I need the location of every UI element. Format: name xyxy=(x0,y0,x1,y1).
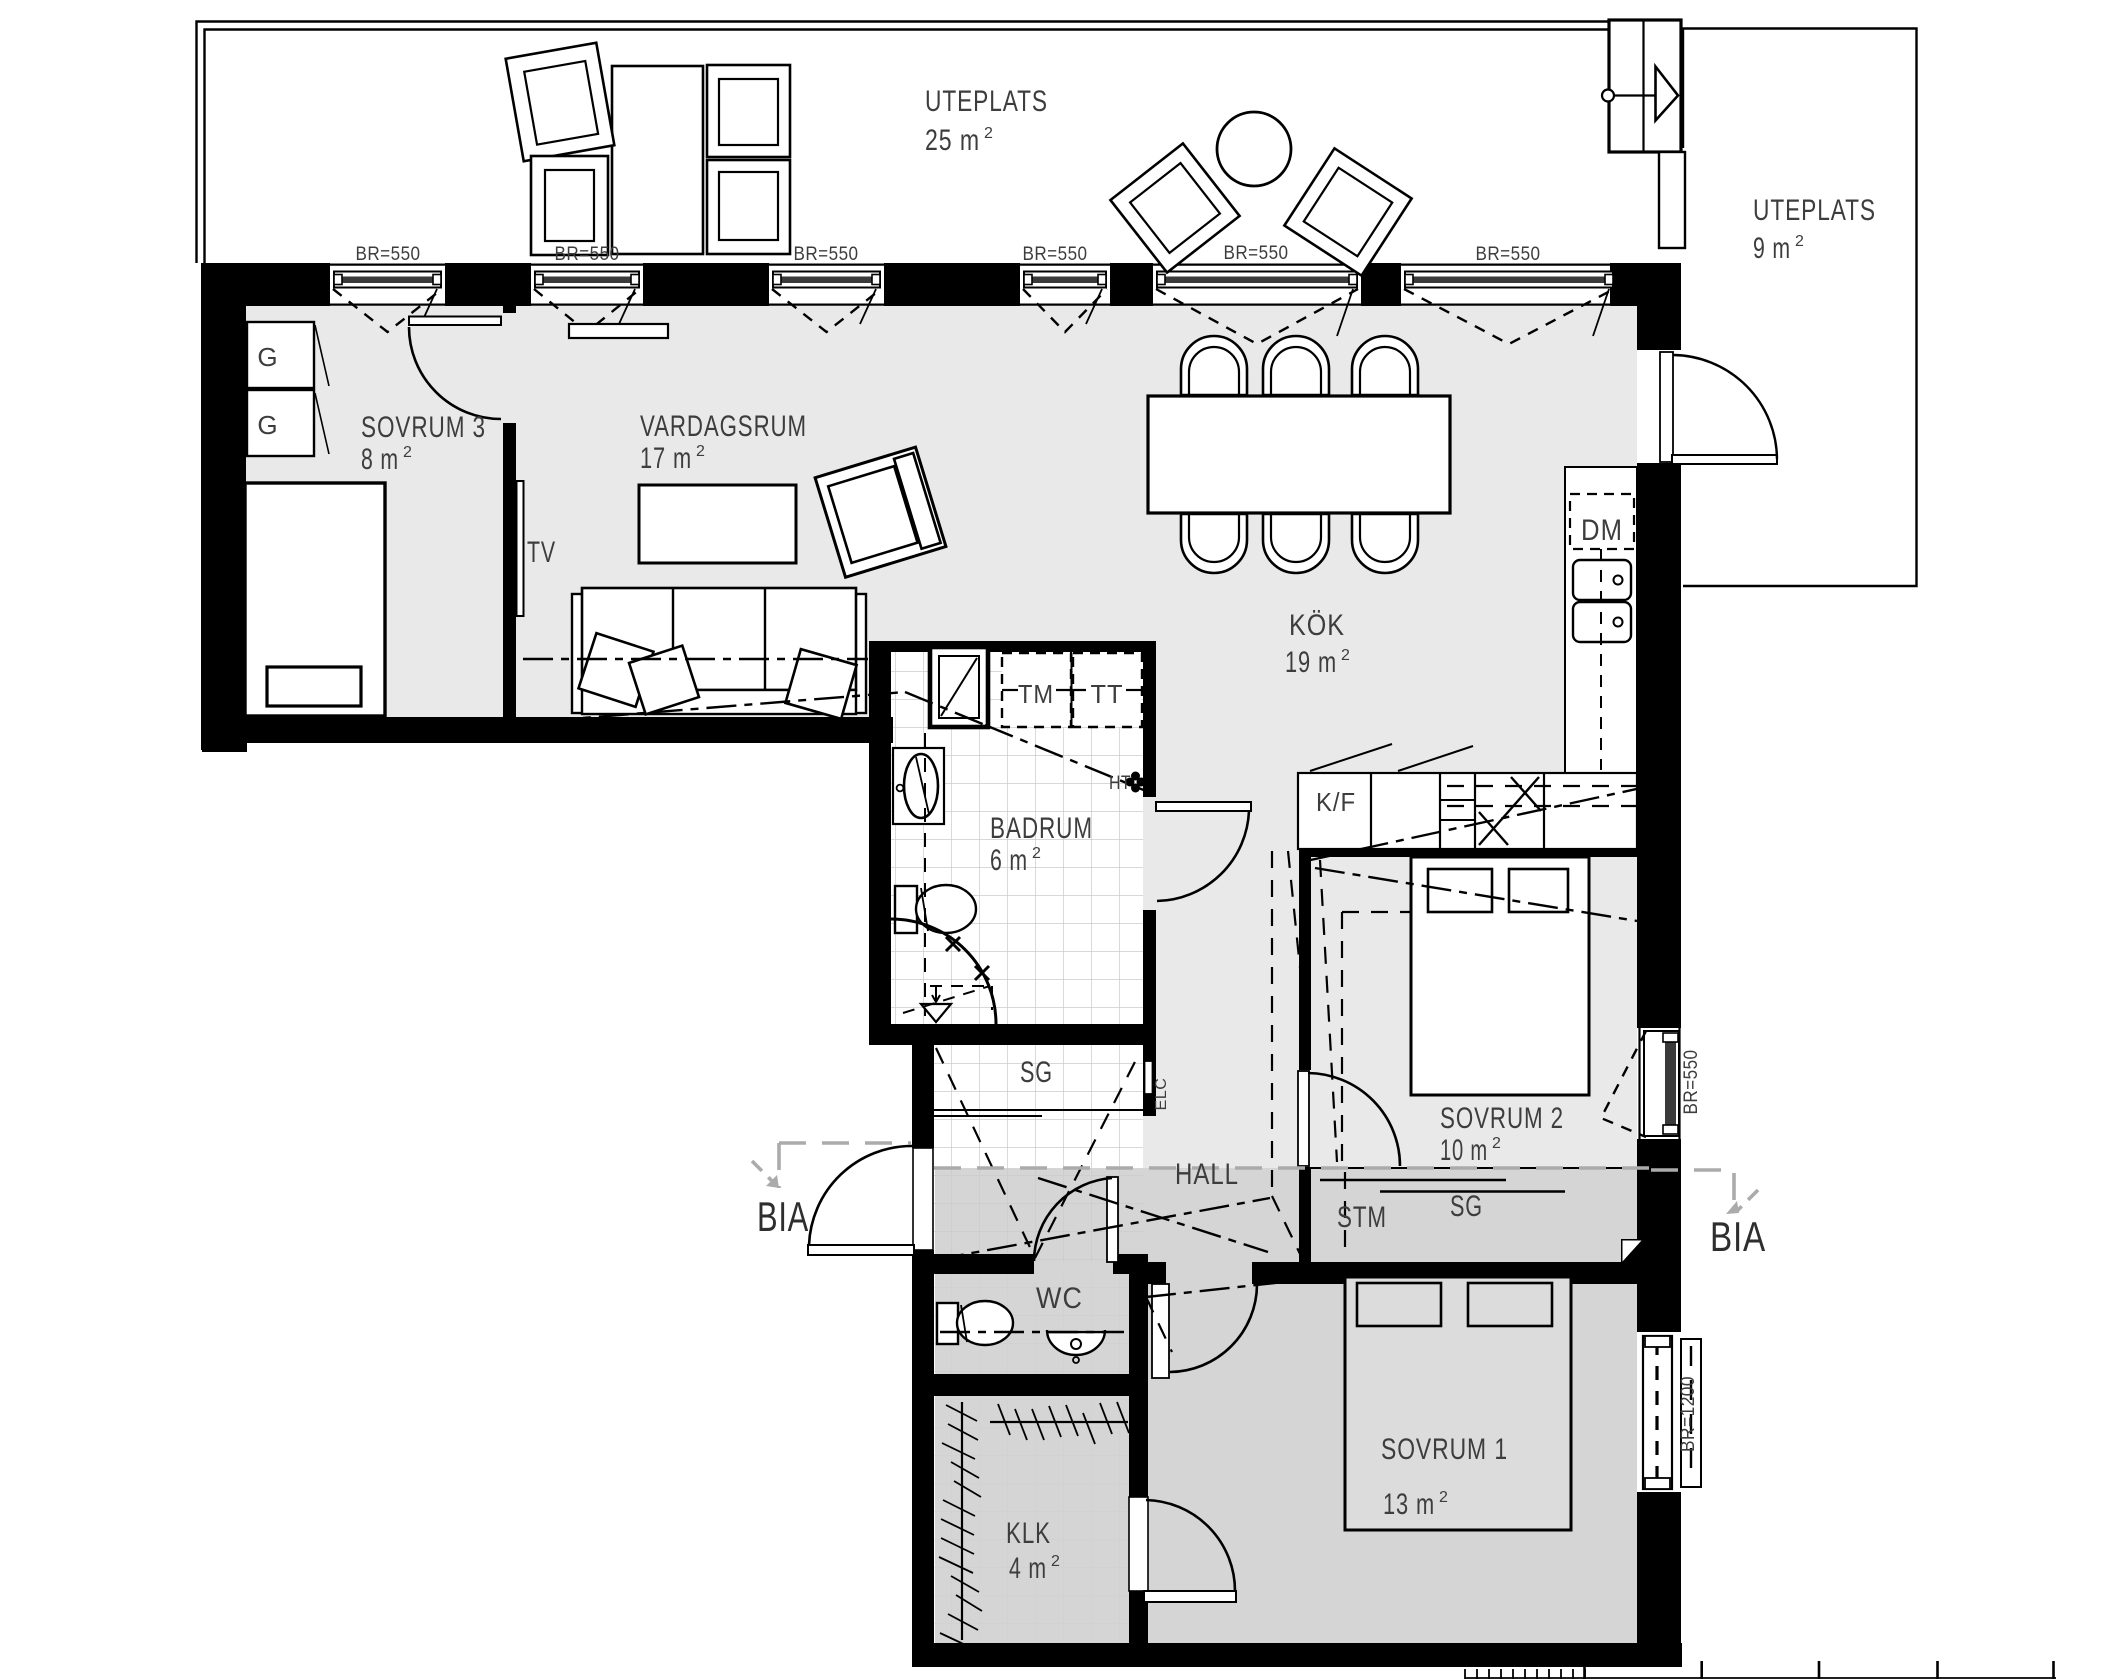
svg-text:KLK: KLK xyxy=(1006,1517,1051,1550)
svg-text:HALL: HALL xyxy=(1175,1158,1239,1191)
svg-text:SOVRUM 1: SOVRUM 1 xyxy=(1381,1433,1508,1466)
svg-text:25 m: 25 m xyxy=(925,124,980,157)
svg-text:ELC: ELC xyxy=(1153,1078,1170,1111)
svg-text:SOVRUM 3: SOVRUM 3 xyxy=(361,411,486,444)
svg-text:BIA: BIA xyxy=(1710,1213,1766,1260)
svg-text:2: 2 xyxy=(696,443,705,460)
svg-text:WC: WC xyxy=(1036,1282,1083,1315)
svg-text:BADRUM: BADRUM xyxy=(990,812,1093,845)
svg-text:BIA: BIA xyxy=(757,1193,809,1240)
svg-text:2: 2 xyxy=(1795,233,1804,250)
svg-text:BR=550: BR=550 xyxy=(1224,243,1289,264)
svg-text:TT: TT xyxy=(1091,679,1124,709)
svg-text:BR=550: BR=550 xyxy=(356,244,421,265)
svg-text:19 m: 19 m xyxy=(1285,646,1337,679)
svg-text:2: 2 xyxy=(1032,845,1041,862)
svg-text:BR=1200: BR=1200 xyxy=(1678,1376,1699,1452)
svg-text:2: 2 xyxy=(1341,647,1350,664)
svg-text:K/F: K/F xyxy=(1316,787,1356,817)
svg-text:17 m: 17 m xyxy=(640,442,692,475)
svg-text:G: G xyxy=(257,410,278,440)
svg-text:13 m: 13 m xyxy=(1383,1488,1435,1521)
svg-text:KÖK: KÖK xyxy=(1289,609,1345,642)
svg-text:9 m: 9 m xyxy=(1753,232,1791,265)
svg-text:BR=550: BR=550 xyxy=(1476,244,1541,265)
svg-text:BR=550: BR=550 xyxy=(555,244,620,265)
svg-text:BR=550: BR=550 xyxy=(794,244,859,265)
svg-text:SG: SG xyxy=(1450,1190,1483,1223)
svg-text:BR=550: BR=550 xyxy=(1023,244,1088,265)
svg-text:10 m: 10 m xyxy=(1440,1134,1488,1167)
svg-text:8 m: 8 m xyxy=(361,443,399,476)
svg-text:2: 2 xyxy=(1051,1553,1060,1570)
svg-text:VARDAGSRUM: VARDAGSRUM xyxy=(640,410,807,443)
svg-text:2: 2 xyxy=(403,444,412,461)
svg-text:SG: SG xyxy=(1020,1056,1053,1089)
svg-text:2: 2 xyxy=(984,125,993,142)
svg-text:4 m: 4 m xyxy=(1009,1552,1047,1585)
svg-text:DM: DM xyxy=(1581,514,1623,547)
svg-text:6 m: 6 m xyxy=(990,844,1028,877)
svg-text:TM: TM xyxy=(1018,679,1054,709)
svg-text:HT: HT xyxy=(1109,773,1131,794)
svg-text:2: 2 xyxy=(1439,1489,1448,1506)
svg-text:SOVRUM 2: SOVRUM 2 xyxy=(1440,1102,1564,1135)
svg-text:BR=550: BR=550 xyxy=(1681,1050,1702,1115)
svg-text:UTEPLATS: UTEPLATS xyxy=(925,85,1048,118)
svg-text:UTEPLATS: UTEPLATS xyxy=(1753,194,1876,227)
svg-text:TV: TV xyxy=(527,536,556,569)
svg-text:G: G xyxy=(257,342,278,372)
svg-text:STM: STM xyxy=(1337,1201,1387,1234)
svg-text:2: 2 xyxy=(1492,1135,1501,1152)
